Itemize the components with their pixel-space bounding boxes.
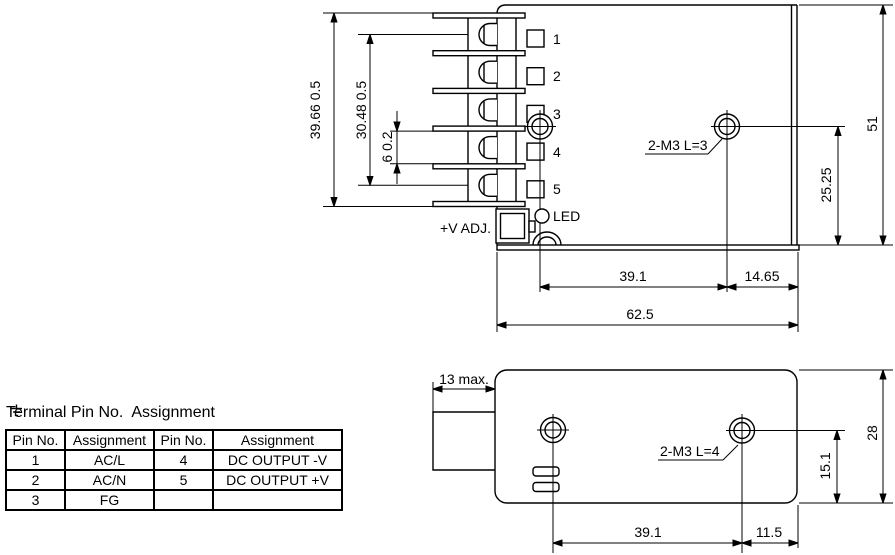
- pin-no-cell: 5: [154, 470, 213, 490]
- assignment-cell: [213, 490, 342, 510]
- pin-marker-5: [527, 181, 544, 198]
- pin-marker-2: [527, 68, 544, 85]
- pin-no-cell: 4: [154, 450, 213, 470]
- led-indicator: [535, 209, 549, 223]
- dim-case-length: 62.5: [626, 306, 653, 322]
- dim-terminal-height: 39.66 0.5: [307, 81, 323, 140]
- col-header-pin-no-2: Pin No.: [154, 430, 213, 450]
- table-row: 2 AC/N 5 DC OUTPUT +V: [6, 470, 342, 490]
- pin-label-1: 1: [553, 31, 561, 47]
- pin-label-5: 5: [553, 181, 561, 197]
- side-view: 39.66 0.5 30.48 0.5 6 0.2 51 25.25 39.1 …: [307, 5, 893, 332]
- voltage-adjust-pot: [496, 209, 535, 243]
- dimensions-bottom: 39.1 14.65 62.5: [497, 252, 798, 332]
- dimensions-bottom: 39.1 11.5: [553, 505, 798, 548]
- dimension-tab: 13 max.: [433, 371, 495, 412]
- dimensions-right: 28 15.1: [799, 370, 893, 503]
- dimensions-right: 51 25.25: [799, 5, 893, 245]
- pin-label-2: 2: [553, 68, 561, 84]
- dim-case-width: 28: [864, 425, 880, 441]
- assignment-cell: AC/L: [65, 450, 154, 470]
- assignment-cell: DC OUTPUT -V: [213, 450, 342, 470]
- terminal-barrier: [433, 13, 525, 18]
- terminal-barrier: [433, 88, 525, 93]
- terminal-screws: [479, 24, 497, 197]
- pin-no-cell: [154, 490, 213, 510]
- col-header-assignment-1: Assignment: [65, 430, 154, 450]
- pin-label-3: 3: [553, 106, 561, 122]
- base-plate: [497, 245, 799, 250]
- assignment-cell: AC/N: [65, 470, 154, 490]
- terminal-block: [433, 13, 544, 207]
- base-bump: [533, 232, 561, 245]
- screw-note-top: 2-M3 L=3: [645, 137, 722, 154]
- led-label: LED: [553, 208, 580, 224]
- terminal-barrier: [433, 126, 525, 131]
- dim-tab: 13 max.: [439, 371, 489, 387]
- pin-label-4: 4: [553, 144, 561, 160]
- dimensions-left: 39.66 0.5 30.48 0.5 6 0.2: [307, 13, 468, 207]
- table-row: 3 FG: [6, 490, 342, 510]
- pin-no-cell: 3: [6, 490, 65, 510]
- pin-assignment-section: Terminal Pin No. Assignment Pin No. Assi…: [5, 404, 343, 511]
- pin-no-cell: 1: [6, 450, 65, 470]
- assignment-cell: DC OUTPUT +V: [213, 470, 342, 490]
- bottom-view: 13 max. 28 15.1 39.1 11.5 2-M3 L=4: [433, 370, 893, 553]
- screw-note-label: 2-M3 L=3: [648, 137, 708, 153]
- dim-case-height: 51: [864, 116, 880, 132]
- dim-hole-to-base: 25.25: [818, 167, 834, 202]
- terminal-tab: [433, 412, 495, 470]
- terminal-barrier: [433, 202, 525, 207]
- pin-table-title: Terminal Pin No. Assignment: [6, 404, 343, 422]
- table-row: 1 AC/L 4 DC OUTPUT -V: [6, 450, 342, 470]
- dim-terminal-slot: 6 0.2: [379, 131, 395, 162]
- col-header-pin-no-1: Pin No.: [6, 430, 65, 450]
- terminal-barrier: [433, 164, 525, 169]
- dim-hole-to-edge: 11.5: [756, 524, 782, 540]
- dim-hole-to-edge: 14.65: [744, 268, 779, 284]
- pin-assignment-table: Pin No. Assignment Pin No. Assignment 1 …: [5, 429, 343, 511]
- dim-hole-span: 39.1: [619, 268, 646, 284]
- pin-marker-1: [527, 30, 544, 47]
- pin-marker-4: [527, 143, 544, 160]
- screw-note-label: 2-M3 L=4: [660, 443, 720, 459]
- dim-hole-to-side: 15.1: [817, 452, 833, 479]
- ground-icon: [10, 404, 23, 417]
- assignment-cell: FG: [65, 490, 154, 510]
- terminal-barrier: [433, 51, 525, 56]
- pin-no-cell: 2: [6, 470, 65, 490]
- dim-hole-span: 39.1: [634, 524, 661, 540]
- col-header-assignment-2: Assignment: [213, 430, 342, 450]
- dim-terminal-pitch-span: 30.48 0.5: [353, 81, 369, 140]
- vadj-label: +V ADJ.: [440, 220, 491, 236]
- technical-drawing-page: 39.66 0.5 30.48 0.5 6 0.2 51 25.25 39.1 …: [0, 0, 895, 555]
